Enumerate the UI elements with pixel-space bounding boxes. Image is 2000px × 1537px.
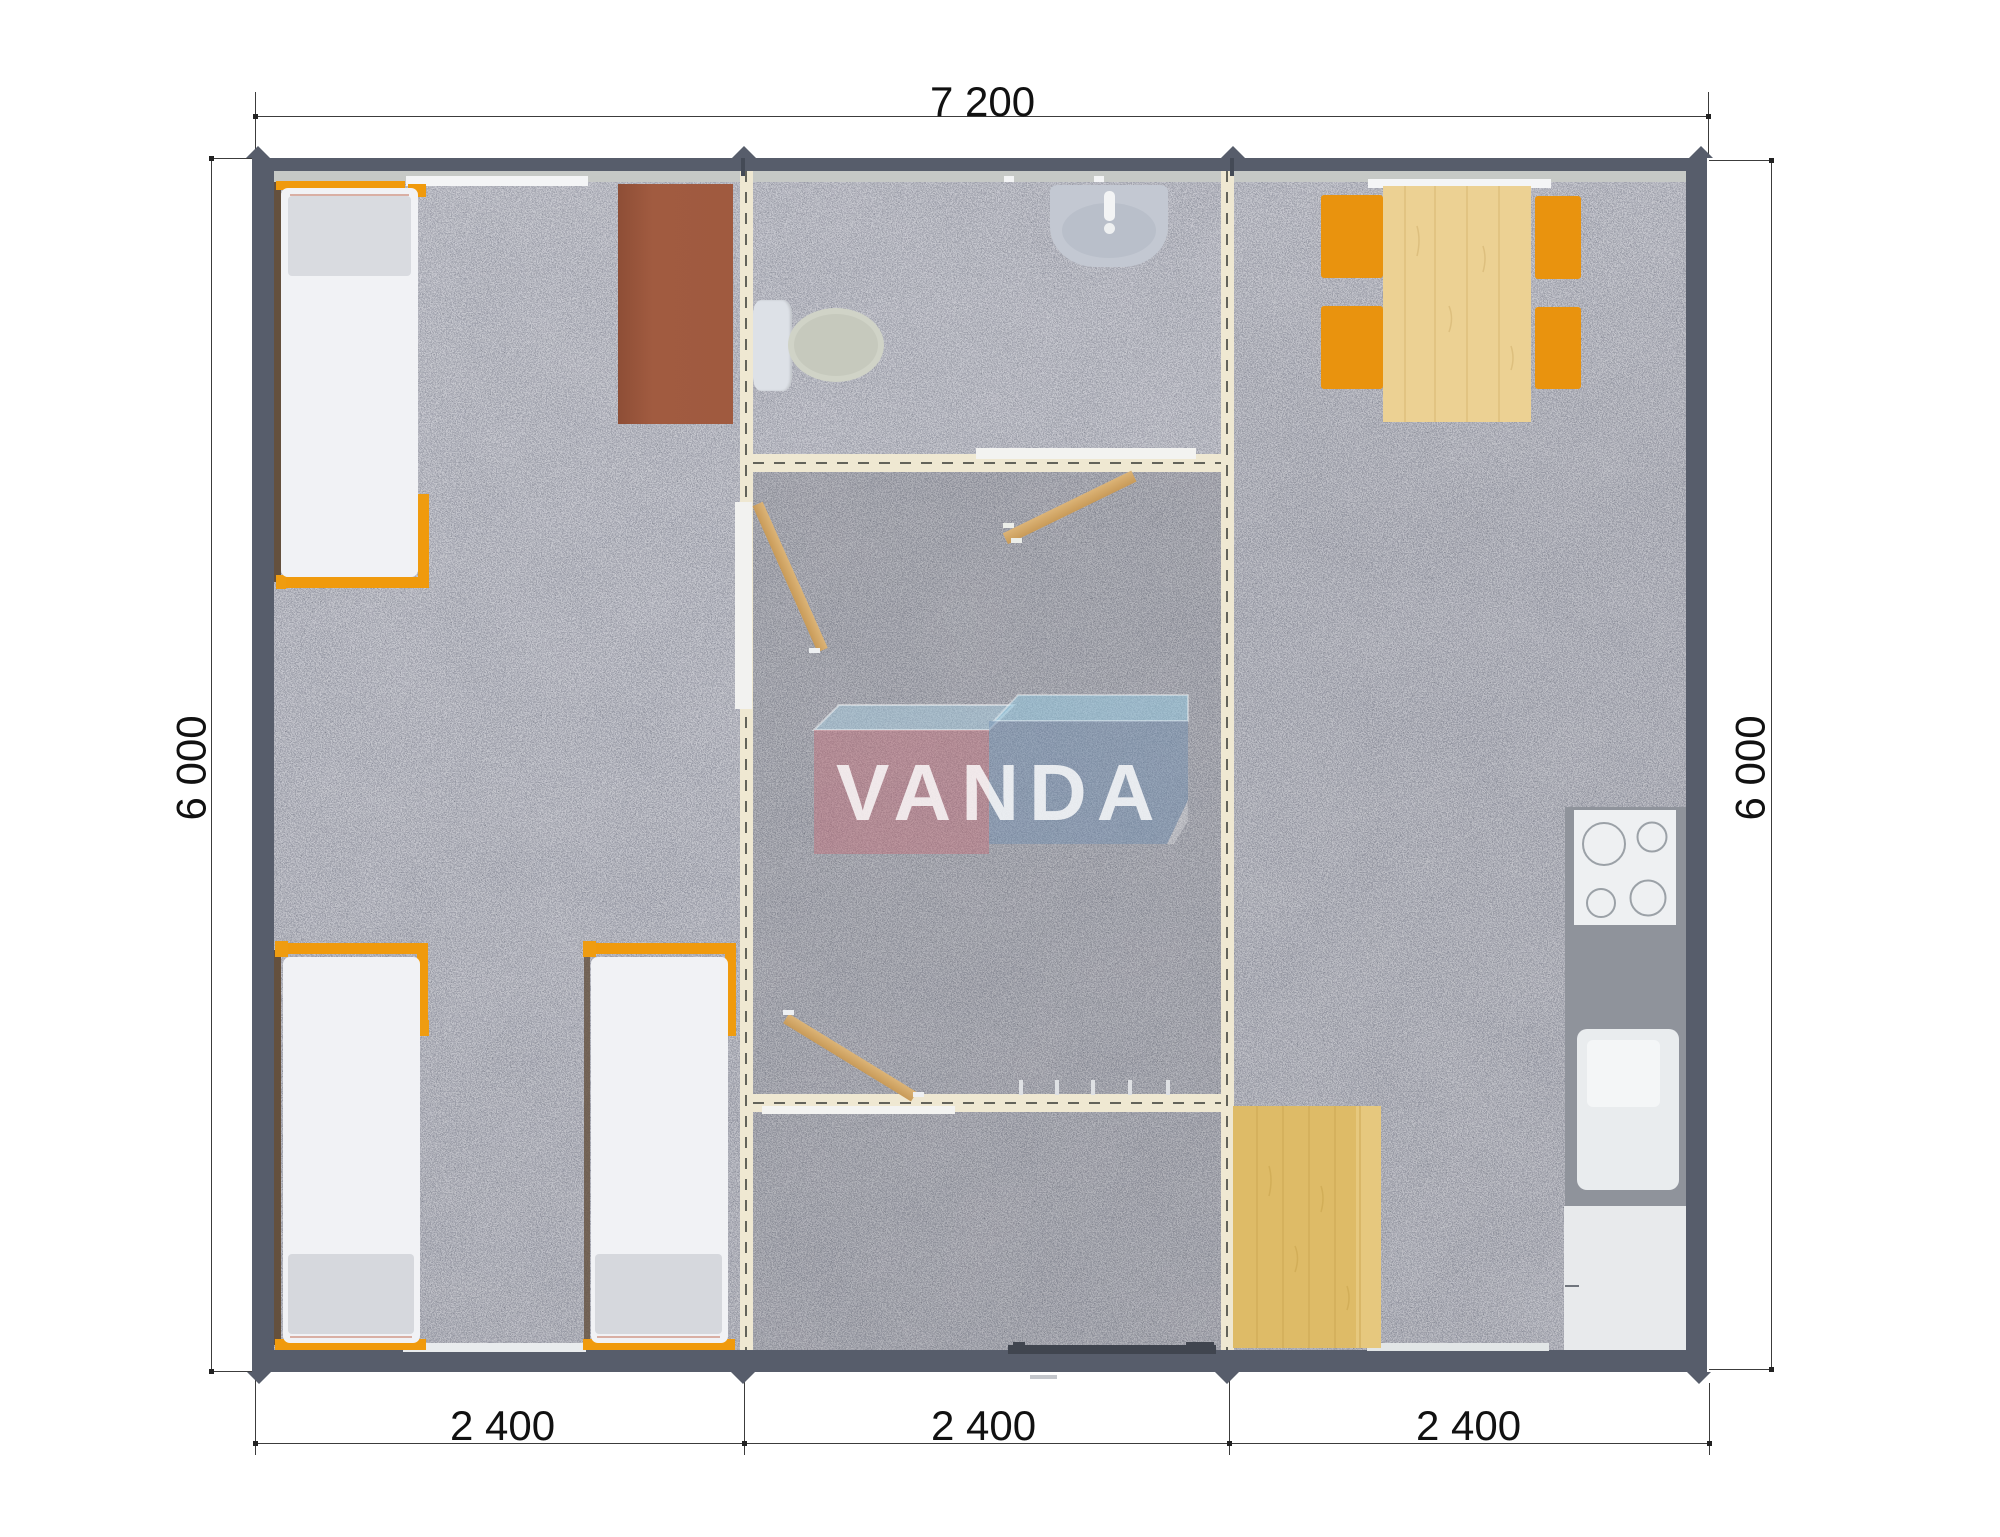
- svg-text:VANDA: VANDA: [836, 748, 1165, 837]
